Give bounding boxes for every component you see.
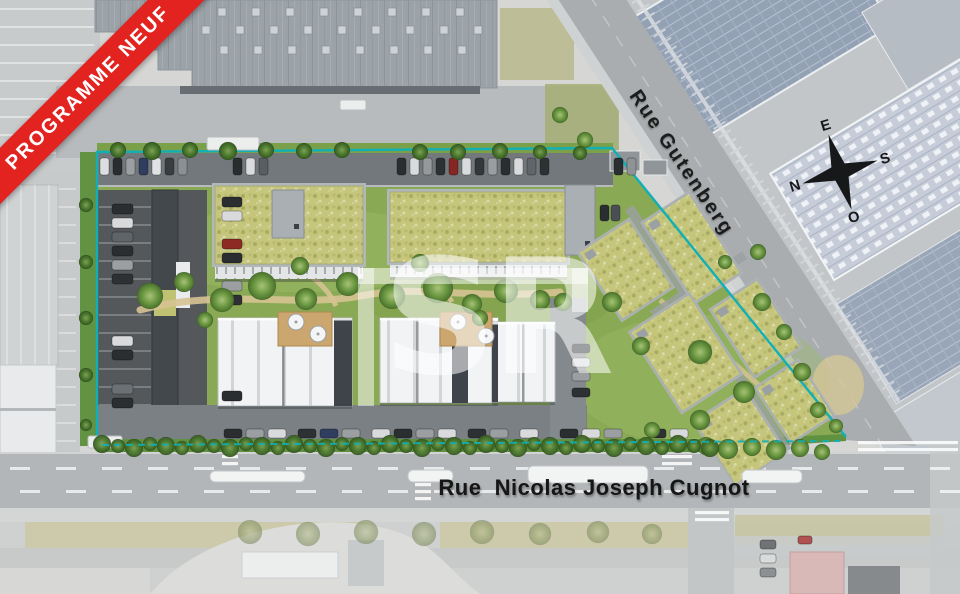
parked-car <box>298 429 316 438</box>
roof-skylight <box>322 46 330 54</box>
tree <box>527 437 541 451</box>
tree <box>412 144 428 160</box>
lane-dash <box>884 467 904 470</box>
lane-dash <box>342 490 362 493</box>
lane-dash <box>838 467 858 470</box>
crosswalk <box>695 510 729 522</box>
truck <box>340 100 366 110</box>
lane-dash <box>20 490 40 493</box>
parked-car <box>410 158 419 175</box>
lane-dash <box>158 490 178 493</box>
tree <box>445 437 463 455</box>
parked-car <box>397 158 406 175</box>
parked-car <box>760 568 776 577</box>
parked-car <box>501 158 510 175</box>
tree <box>110 142 126 158</box>
tree <box>776 324 792 340</box>
tree <box>492 143 508 159</box>
roof-skylight <box>372 26 380 34</box>
parked-car <box>572 344 590 353</box>
lane-dash <box>250 490 270 493</box>
tree <box>423 273 453 303</box>
parked-car <box>514 158 523 175</box>
parked-car <box>798 536 812 544</box>
roof-skylight <box>354 8 362 16</box>
parked-car <box>475 158 484 175</box>
crosswalk <box>662 452 692 468</box>
roof-skylight <box>390 46 398 54</box>
roof-edge <box>492 322 555 325</box>
parked-car <box>112 204 133 214</box>
tree <box>529 523 551 545</box>
tree <box>494 279 518 303</box>
lane-dash <box>240 467 260 470</box>
parked-car <box>259 158 268 175</box>
parked-car <box>165 158 174 175</box>
site-overlay <box>0 0 960 594</box>
roof-skylight <box>218 8 226 16</box>
lane-dash <box>802 490 822 493</box>
tree <box>718 255 732 269</box>
lane-dash <box>848 490 868 493</box>
tree <box>175 441 189 455</box>
parked-car <box>572 388 590 397</box>
roof-core <box>272 190 304 238</box>
parked-car <box>438 429 456 438</box>
tree <box>573 435 591 453</box>
tree <box>554 293 572 311</box>
parked-car <box>100 158 109 175</box>
roof-skylight <box>458 46 466 54</box>
tree <box>79 311 93 325</box>
tree <box>587 521 609 543</box>
tree <box>642 524 662 544</box>
tree <box>753 293 771 311</box>
tree <box>733 381 755 403</box>
compass: E S O N <box>786 118 894 226</box>
parked-car <box>490 429 508 438</box>
tree <box>644 422 660 438</box>
lane-dash <box>112 490 132 493</box>
parked-car <box>614 158 623 175</box>
tree <box>399 439 413 453</box>
dark-roof-panel <box>334 318 352 406</box>
tree <box>814 444 830 460</box>
parked-car <box>222 391 242 401</box>
lane-dash <box>894 490 914 493</box>
tree <box>530 290 550 310</box>
parked-car <box>488 158 497 175</box>
aerial-site-plan: PROGRAMME NEUF Rue Gutenberg Rue Nicolas… <box>0 0 960 594</box>
umbrella-pole <box>457 321 460 324</box>
tree <box>411 254 429 272</box>
tree <box>174 272 194 292</box>
parked-car <box>222 197 242 207</box>
compass-north-label: N <box>788 177 803 195</box>
parked-car <box>572 358 590 367</box>
parked-car <box>112 260 133 270</box>
tree <box>125 439 143 457</box>
building-shadow <box>380 403 498 406</box>
lane-dash <box>194 467 214 470</box>
tree <box>157 437 175 455</box>
tree <box>182 142 198 158</box>
parked-car <box>112 336 133 346</box>
lane-dash <box>56 467 76 470</box>
roof-skylight <box>286 8 294 16</box>
roof-skylight <box>220 46 228 54</box>
parked-car <box>416 429 434 438</box>
tree <box>573 146 587 160</box>
green-roof-building <box>390 192 567 262</box>
tree <box>258 142 274 158</box>
tree <box>354 520 378 544</box>
parked-car <box>342 429 360 438</box>
roof-hatch <box>294 224 299 229</box>
tree <box>219 142 237 160</box>
umbrella-pole <box>317 333 320 336</box>
parked-car <box>423 158 432 175</box>
tree <box>495 439 509 453</box>
crosswalk <box>858 438 958 453</box>
parked-car <box>268 429 286 438</box>
tree <box>295 288 317 310</box>
parked-car <box>113 158 122 175</box>
parked-car <box>112 350 133 360</box>
lane-dash <box>10 467 30 470</box>
tree <box>472 310 488 326</box>
lane-dash <box>332 467 352 470</box>
compass-star <box>791 123 889 221</box>
lane-dash <box>204 490 224 493</box>
tree <box>552 107 568 123</box>
parked-car <box>112 274 133 284</box>
roof-skylight <box>422 8 430 16</box>
tree <box>591 439 605 453</box>
parked-car <box>126 158 135 175</box>
lane-dash <box>296 490 316 493</box>
tree <box>412 522 436 546</box>
tree <box>303 439 317 453</box>
parked-car <box>320 429 338 438</box>
roof-skylight <box>252 8 260 16</box>
lane-dash <box>378 467 398 470</box>
tree <box>291 257 309 275</box>
lane-dash <box>700 467 720 470</box>
tree <box>79 255 93 269</box>
tree <box>238 520 262 544</box>
parked-car <box>152 158 161 175</box>
parked-car <box>224 429 242 438</box>
tree <box>450 144 466 160</box>
parked-car <box>611 205 620 221</box>
tree <box>533 145 547 159</box>
compass-rose: E S O N <box>786 118 894 226</box>
tree <box>79 198 93 212</box>
roof-skylight <box>456 8 464 16</box>
tree <box>655 441 669 455</box>
tree <box>829 419 843 433</box>
umbrella-pole <box>295 321 298 324</box>
compass-west-label: O <box>846 209 862 226</box>
tree <box>602 292 622 312</box>
parked-car <box>222 239 242 249</box>
parked-car <box>222 253 242 263</box>
tree <box>669 435 687 453</box>
street-label-cugnot: Rue Nicolas Joseph Cugnot <box>438 475 749 501</box>
roof-skylight <box>304 26 312 34</box>
parked-car <box>112 384 133 394</box>
bus <box>742 470 802 483</box>
tree <box>541 437 559 455</box>
tree <box>143 142 161 160</box>
tree <box>137 283 163 309</box>
roof-skylight <box>474 26 482 34</box>
parked-car <box>560 429 578 438</box>
parked-car <box>462 158 471 175</box>
tree <box>221 439 239 457</box>
tree <box>690 410 710 430</box>
parked-car <box>540 158 549 175</box>
tree <box>470 520 494 544</box>
bus <box>210 471 305 482</box>
parked-car <box>760 540 776 549</box>
tree <box>793 363 811 381</box>
lane-dash <box>286 467 306 470</box>
roof-skylight <box>440 26 448 34</box>
roof-seam <box>522 322 525 402</box>
tree <box>750 244 766 260</box>
tree <box>577 132 593 148</box>
umbrella-pole <box>485 335 488 338</box>
parked-car <box>604 429 622 438</box>
parked-car <box>600 205 609 221</box>
parked-car <box>233 158 242 175</box>
tree <box>334 142 350 158</box>
tree <box>623 437 637 451</box>
roof-skylight <box>320 8 328 16</box>
tree <box>296 522 320 546</box>
parked-car <box>394 429 412 438</box>
lane-dash <box>148 467 168 470</box>
tree <box>210 288 234 312</box>
roof-skylight <box>424 46 432 54</box>
roof-skylight <box>270 26 278 34</box>
tree <box>248 272 276 300</box>
parked-car <box>112 218 133 228</box>
tree <box>688 340 712 364</box>
parked-car <box>449 158 458 175</box>
roof-skylight <box>356 46 364 54</box>
tree <box>79 368 93 382</box>
tree <box>413 439 431 457</box>
tree <box>637 437 655 455</box>
parked-car <box>760 554 776 563</box>
tree <box>207 439 221 453</box>
tree <box>80 419 92 431</box>
lane-dash <box>940 490 960 493</box>
parked-car <box>178 158 187 175</box>
tree <box>349 437 367 455</box>
roof-skylight <box>288 46 296 54</box>
roof-skylight <box>388 8 396 16</box>
roof-skylight <box>254 46 262 54</box>
tree <box>810 402 826 418</box>
compass-east-label: E <box>819 118 833 135</box>
parked-car <box>139 158 148 175</box>
parked-car <box>520 429 538 438</box>
lane-dash <box>756 490 776 493</box>
parked-car <box>112 398 133 408</box>
tree <box>379 283 405 309</box>
parked-car <box>436 158 445 175</box>
tree <box>197 312 213 328</box>
roof-seam <box>416 318 419 403</box>
tree <box>766 440 786 460</box>
tree <box>477 435 495 453</box>
roof-skylight <box>236 26 244 34</box>
tree <box>509 439 527 457</box>
tree <box>336 272 360 296</box>
roof-skylight <box>406 26 414 34</box>
parked-car <box>246 158 255 175</box>
roof-skylight <box>202 26 210 34</box>
lane-dash <box>470 467 490 470</box>
parked-car <box>112 246 133 256</box>
parked-car <box>627 158 636 175</box>
lane-dash <box>930 467 950 470</box>
building-shadow <box>390 277 567 280</box>
lane-dash <box>66 490 86 493</box>
building-shadow <box>492 402 555 405</box>
parked-car <box>246 429 264 438</box>
tree <box>632 337 650 355</box>
parked-car <box>112 232 133 242</box>
tree <box>253 437 271 455</box>
building-shadow <box>218 406 352 409</box>
lane-dash <box>102 467 122 470</box>
compass-south-label: S <box>878 150 892 168</box>
tree <box>111 439 125 453</box>
parked-car <box>527 158 536 175</box>
tree <box>296 143 312 159</box>
parked-car <box>572 372 590 381</box>
roof-skylight <box>338 26 346 34</box>
lane-dash <box>388 490 408 493</box>
parked-car <box>222 211 242 221</box>
tree <box>317 439 335 457</box>
